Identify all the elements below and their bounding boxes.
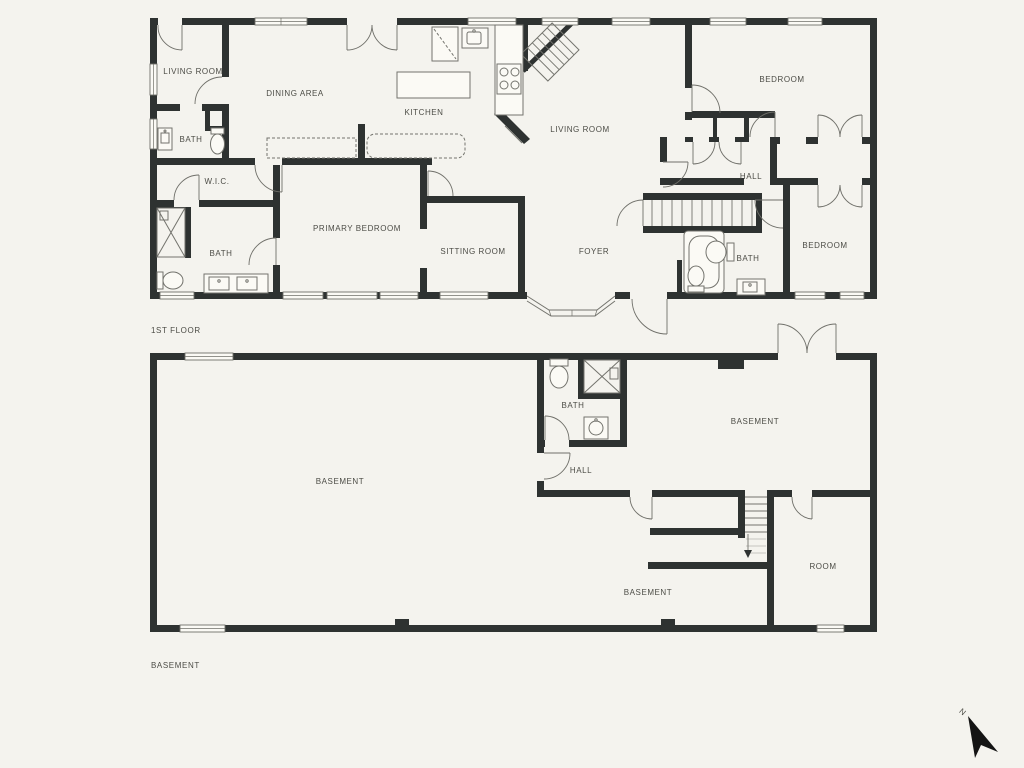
kitchen-counter-right [367, 134, 465, 158]
room-label-bath-left: BATH [210, 249, 233, 258]
stairs-diagonal [521, 23, 579, 81]
north-arrow-icon [968, 716, 998, 758]
toilet-small-bath [211, 128, 225, 154]
room-label-living-room-small: LIVING ROOM [163, 67, 222, 76]
toilet-right-bath [706, 241, 734, 263]
room-label-kitchen: KITCHEN [405, 108, 444, 117]
room-label-dining-area: DINING AREA [266, 89, 324, 98]
basement-stairs [744, 497, 767, 558]
floor-plan-svg: LIVING ROOM BATH DINING AREA KITCHEN LIV… [0, 0, 1024, 768]
room-label-foyer: FOYER [579, 247, 609, 256]
basement-plan: BATH BASEMENT HALL BASEMENT BASEMENT ROO… [150, 324, 877, 670]
room-label-basement-room: ROOM [809, 562, 836, 571]
basement-walls [150, 353, 877, 632]
room-label-bath-upper-left: BATH [180, 135, 203, 144]
stairs-direction-arrow [744, 550, 752, 558]
floor-plan-page: LIVING ROOM BATH DINING AREA KITCHEN LIV… [0, 0, 1024, 768]
basement-shower [584, 360, 620, 393]
stairs-main [652, 200, 752, 226]
sink-small-bath [158, 128, 172, 150]
toilet-left-bath [157, 272, 183, 289]
room-label-bedroom-top-right: BEDROOM [759, 75, 804, 84]
basement-floor-label: BASEMENT [151, 661, 200, 670]
room-label-bath-right: BATH [737, 254, 760, 263]
room-label-hall: HALL [740, 172, 762, 181]
shower-left-bath [157, 208, 185, 257]
kitchen-island [397, 72, 470, 98]
room-label-wic: W.I.C. [204, 177, 229, 186]
compass: N [957, 707, 998, 758]
room-label-basement-bath: BATH [562, 401, 585, 410]
basement-sink [584, 417, 608, 439]
double-vanity [204, 274, 268, 293]
room-label-bedroom-right: BEDROOM [802, 241, 847, 250]
first-floor-plan: LIVING ROOM BATH DINING AREA KITCHEN LIV… [150, 18, 877, 335]
north-label: N [957, 707, 968, 718]
room-label-basement-lower: BASEMENT [624, 588, 672, 597]
toilet-foyer-bath [688, 266, 704, 292]
basement-toilet [550, 359, 568, 388]
room-label-living-room-main: LIVING ROOM [550, 125, 609, 134]
stove [495, 25, 523, 115]
room-label-sitting-room: SITTING ROOM [440, 247, 505, 256]
room-label-basement-right: BASEMENT [731, 417, 779, 426]
room-label-primary-bedroom: PRIMARY BEDROOM [313, 224, 401, 233]
room-label-basement-main: BASEMENT [316, 477, 364, 486]
room-label-basement-hall: HALL [570, 466, 592, 475]
kitchen-counter-left [267, 138, 356, 158]
sink-right-bath [737, 279, 765, 295]
kitchen-sink [462, 28, 488, 48]
fridge [432, 27, 458, 61]
first-floor-label: 1ST FLOOR [151, 326, 201, 335]
